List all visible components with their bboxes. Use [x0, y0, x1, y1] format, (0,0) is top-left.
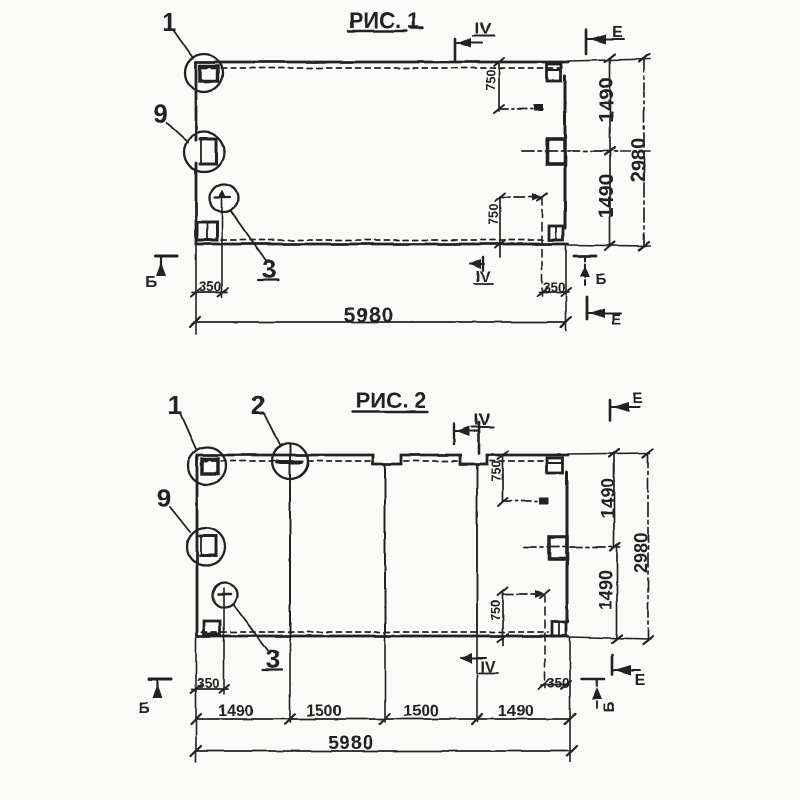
svg-text:1490: 1490: [598, 478, 618, 518]
svg-text:E: E: [611, 311, 621, 328]
svg-text:1500: 1500: [403, 703, 439, 720]
svg-text:350: 350: [543, 280, 566, 295]
svg-text:750: 750: [484, 70, 498, 91]
svg-text:E: E: [635, 672, 646, 689]
svg-text:Б: Б: [138, 700, 150, 717]
svg-text:Б: Б: [596, 271, 607, 288]
svg-text:2980: 2980: [631, 533, 651, 573]
svg-text:E: E: [633, 390, 644, 407]
svg-text:350: 350: [547, 676, 570, 691]
svg-text:РИС. 2: РИС. 2: [356, 388, 427, 413]
svg-text:1500: 1500: [306, 703, 342, 720]
svg-text:1490: 1490: [596, 78, 618, 123]
svg-text:1490: 1490: [596, 174, 618, 219]
svg-text:750: 750: [490, 461, 504, 482]
svg-text:9: 9: [154, 99, 168, 129]
svg-text:350: 350: [197, 676, 220, 691]
svg-text:350: 350: [199, 279, 222, 294]
svg-text:1490: 1490: [218, 703, 254, 720]
svg-text:1490: 1490: [596, 570, 616, 610]
svg-text:E: E: [612, 24, 623, 41]
svg-text:РИС. 1: РИС. 1: [349, 8, 420, 33]
svg-text:750: 750: [487, 204, 501, 225]
svg-text:750: 750: [489, 600, 503, 621]
svg-text:Б: Б: [601, 701, 618, 712]
svg-text:1490: 1490: [498, 703, 534, 720]
svg-text:2: 2: [251, 390, 265, 420]
svg-text:2980: 2980: [628, 138, 650, 183]
svg-text:5980: 5980: [344, 304, 395, 327]
svg-text:1: 1: [168, 390, 182, 420]
svg-text:5980: 5980: [328, 733, 374, 754]
svg-text:Б: Б: [145, 274, 157, 291]
svg-text:9: 9: [157, 483, 171, 513]
